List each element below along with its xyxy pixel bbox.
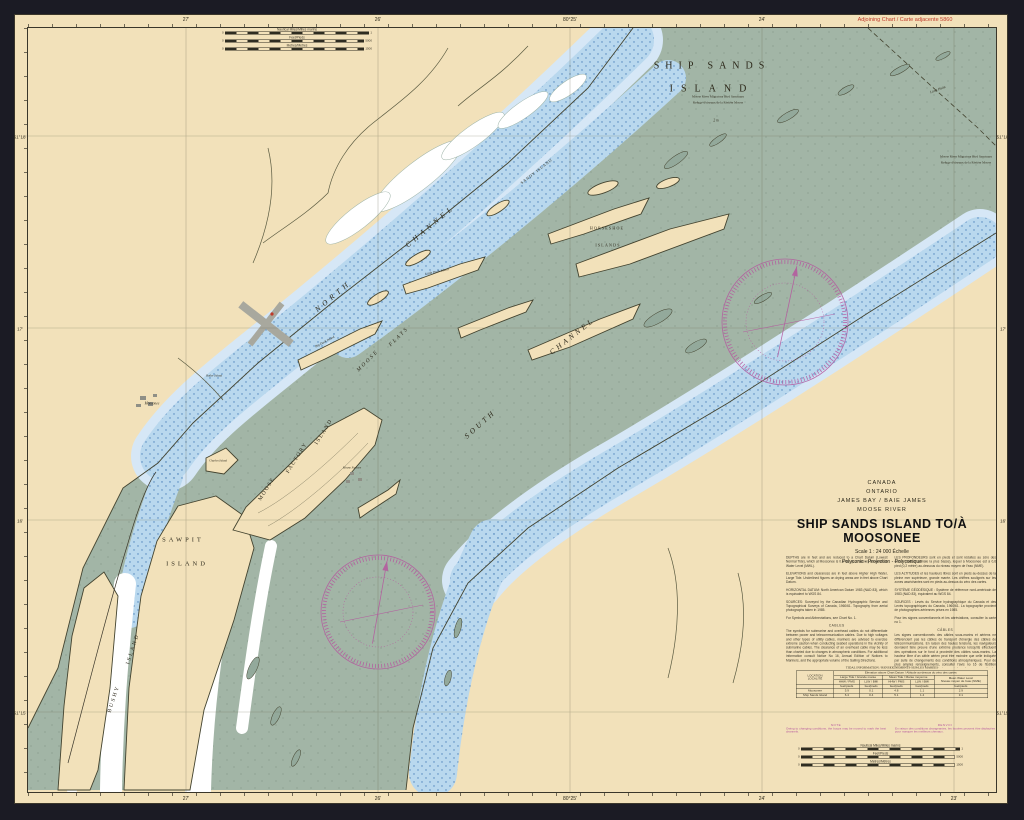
bottom-lon-label: 23' [951,796,958,802]
tide-row-location: Ship Sands Island [796,693,834,698]
scalebar-tick: 0 [798,756,800,759]
top-lon-label: 24' [759,17,766,23]
label-moose-factory-town: Moose Factory [343,467,361,470]
chart-notes: DEPTHS are in feet and are reduced to a … [786,556,996,668]
bottom-scale-bars: Nautical Miles/Milles marins 01 Feet/Pie… [798,744,963,792]
label-sanctuary-en: Moose River Migratory Bird Sanctuary [692,95,744,98]
tide-value: 6.4 [834,693,860,698]
scalebar-tick: 0 [222,40,224,43]
scalebar-metres [225,48,364,51]
right-lat-label: 51°18' [997,135,1010,140]
scalebar-tick: 1500 [365,48,372,51]
scalebar-tick: 1 [961,748,963,751]
note-sources: SOURCES: Surveyed by the Canadian Hydrog… [786,600,888,613]
scalebar-tick: 0 [222,48,224,51]
title-region: JAMES BAY / BAIE JAMES [762,498,1002,504]
scalebar-feet [801,756,955,759]
tide-value: 5.1 [883,693,911,698]
cables-heading-fr: CÂBLES [895,628,997,632]
bottom-lon-label: 27' [183,796,190,802]
table-row: Ship Sands Island 6.4 0.4 5.1 1.4 3.1 [796,693,988,698]
scalebar-miles [225,32,369,35]
note-depths: DEPTHS are in feet and are reduced to a … [786,556,888,569]
label-sawpit-island-2: ISLAND [166,561,208,568]
bottom-lon-label: 26' [375,796,382,802]
label-horseshoe-islands-2: ISLANDS [595,244,620,248]
label-butler-island: Butler Island [206,375,222,378]
notes-english: DEPTHS are in feet and are reduced to a … [786,556,888,668]
bottom-lon-label: 24' [759,796,766,802]
tide-table: LOCATIONLOCALITÉ Elevation above Chart D… [796,671,988,699]
label-sanctuary-en-2: Moose River Migratory Bird Sanctuary [940,155,992,158]
note-symbols: For Symbols and Abbreviations, see Chart… [786,616,888,620]
chart-title: SHIP SANDS ISLAND TO/À MOOSONEE [762,517,1002,545]
label-horseshoe-islands: HORSESHOE [590,227,624,231]
scalebar-miles [801,748,960,751]
scalebar-tick: 5000 [365,40,372,43]
left-lat-label: 51°18' [14,135,27,140]
tide-value: 1.4 [910,693,934,698]
scalebar-tick: 5000 [956,756,963,759]
label-ship-sands-island-2: ISLAND [670,84,755,95]
bottom-lon-label: 80°25' [563,796,577,802]
note-block: NOTE Owing to changing conditions, the b… [786,724,886,734]
chart-scale: Scale 1 : 24 000 Échelle [762,549,1002,555]
scalebar-tick: 0 [798,748,800,751]
tide-value: 3.1 [934,693,988,698]
note-cables-en: The symbols for submarine and overhead c… [786,629,888,663]
left-lat-label: 17' [17,327,23,332]
label-2m: 2 m [713,119,718,123]
label-ship-sands-island: SHIP SANDS [654,61,771,72]
tide-value: 0.4 [860,693,883,698]
top-tick-strip [28,24,996,27]
right-lat-label: 17' [1000,327,1006,332]
left-lat-label: 16' [17,519,23,524]
tide-table-block: TIDAL INFORMATION / RENSEIGNEMENTS SUR L… [796,666,992,722]
note-elevations: ELEVATIONS and clearances are in feet ab… [786,572,888,585]
tide-table-title: TIDAL INFORMATION / RENSEIGNEMENTS SUR L… [796,666,988,670]
renvoi-text: En raison des conditions changeantes, le… [895,728,995,734]
left-lat-label: 51°15' [14,711,27,716]
notes-french: LES PROFONDEURS sont en pieds et sont ré… [895,556,997,668]
label-sawpit-island: SAWPIT [162,537,204,544]
note-systeme: SYSTÈME GÉODÉSIQUE : Système de référenc… [895,588,997,596]
note-datum: HORIZONTAL DATUM: North American Datum 1… [786,588,888,596]
scalebar-tick: 1500 [956,764,963,767]
title-province: ONTARIO [762,489,1002,495]
label-sanctuary-fr: Refuge d'oiseaux de la Rivière Moose [693,101,743,104]
bottom-tick-strip [28,793,996,796]
scalebar-tick: 1 [370,32,372,35]
tide-col-mwl-fr: Niveau moyen de l'eau (NME) [941,680,981,683]
nautical-chart-page: 27' 26' 80°25' 24' 27' 26' 80°25' 24' 23… [0,0,1024,820]
adjoining-chart-note: Adjoining Chart / Carte adjacente 5860 [858,17,953,23]
label-sanctuary-fr-2: Refuge d'oiseaux de la Rivière Moose [941,161,991,164]
title-country: CANADA [762,480,1002,486]
label-moosonee-town: Moosonee [145,402,160,406]
top-lon-label: 26' [375,17,382,23]
note-text: Owing to changing conditions, the buoys … [786,728,886,734]
tide-col-localite: LOCALITÉ [808,678,823,681]
top-lon-label: 80°25' [563,17,577,23]
note-cables-fr: Les signes conventionnels des câbles sou… [895,634,997,668]
scalebar-tick: 0 [222,32,224,35]
cables-heading-en: CABLES [786,624,888,628]
note-sources-fr: SOURCES : Levés du Service hydrographiqu… [895,600,997,613]
note-altitudes: LES ALTITUDES et les hauteurs libres son… [895,572,997,585]
renvoi-block: RENVOI En raison des conditions changean… [895,724,995,734]
right-lat-label: 51°15' [997,711,1010,716]
note-profondeurs: LES PROFONDEURS sont en pieds et sont ré… [895,556,997,569]
title-block: CANADA ONTARIO JAMES BAY / BAIE JAMES MO… [762,452,1002,565]
top-lon-label: 27' [183,17,190,23]
scalebar-metres [801,764,955,767]
title-river: MOOSE RIVER [762,507,1002,513]
top-scale-bars: Nautical Miles/Milles marins 01 Feet/Pie… [222,28,372,76]
note-signes: Pour les signes conventionnels et les ab… [895,616,997,624]
scalebar-feet [225,40,364,43]
left-tick-strip [24,28,27,792]
label-charles-island: Charles Island [209,460,227,463]
scalebar-tick: 0 [798,764,800,767]
